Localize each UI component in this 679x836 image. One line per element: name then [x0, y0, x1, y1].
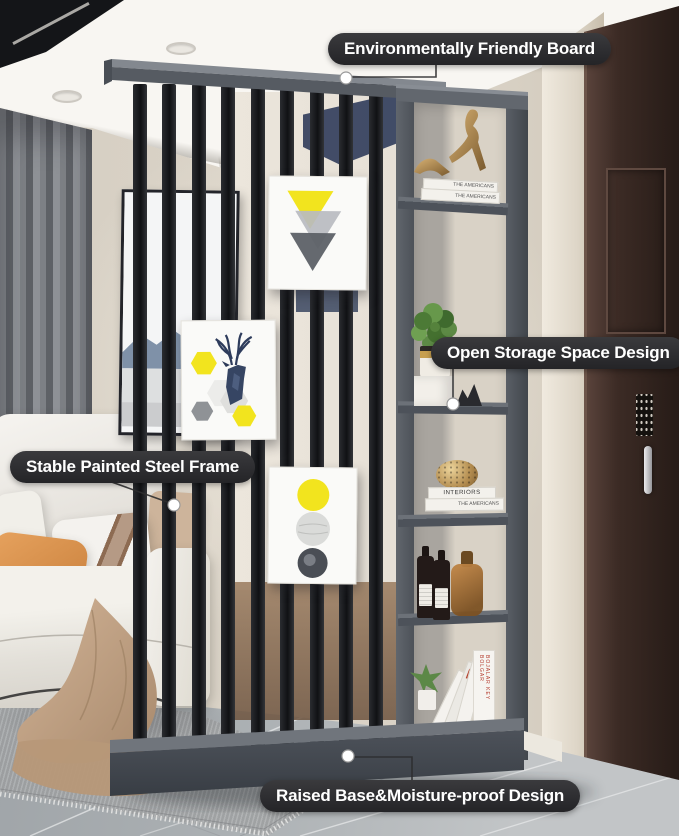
leader-line-frame [106, 480, 170, 503]
annotation-dot [447, 398, 459, 410]
callout-environmentally-friendly-board: Environmentally Friendly Board [328, 33, 611, 65]
callout-open-storage-space: Open Storage Space Design [431, 337, 679, 369]
callout-raised-base: Raised Base&Moisture-proof Design [260, 780, 580, 812]
annotation-dot [342, 750, 354, 762]
leader-line-base [352, 757, 412, 781]
product-photo: THE AMERICANS THE AMERICANS INTERIORS TH… [0, 0, 679, 836]
annotation-dot [340, 72, 352, 84]
callout-stable-steel-frame: Stable Painted Steel Frame [10, 451, 255, 483]
leader-line-board [350, 63, 436, 77]
callout-label: Open Storage Space Design [447, 343, 670, 363]
callout-label: Environmentally Friendly Board [344, 39, 595, 59]
callout-label: Raised Base&Moisture-proof Design [276, 786, 564, 806]
annotation-overlay [0, 0, 679, 836]
callout-label: Stable Painted Steel Frame [26, 457, 239, 477]
annotation-dot [168, 499, 180, 511]
